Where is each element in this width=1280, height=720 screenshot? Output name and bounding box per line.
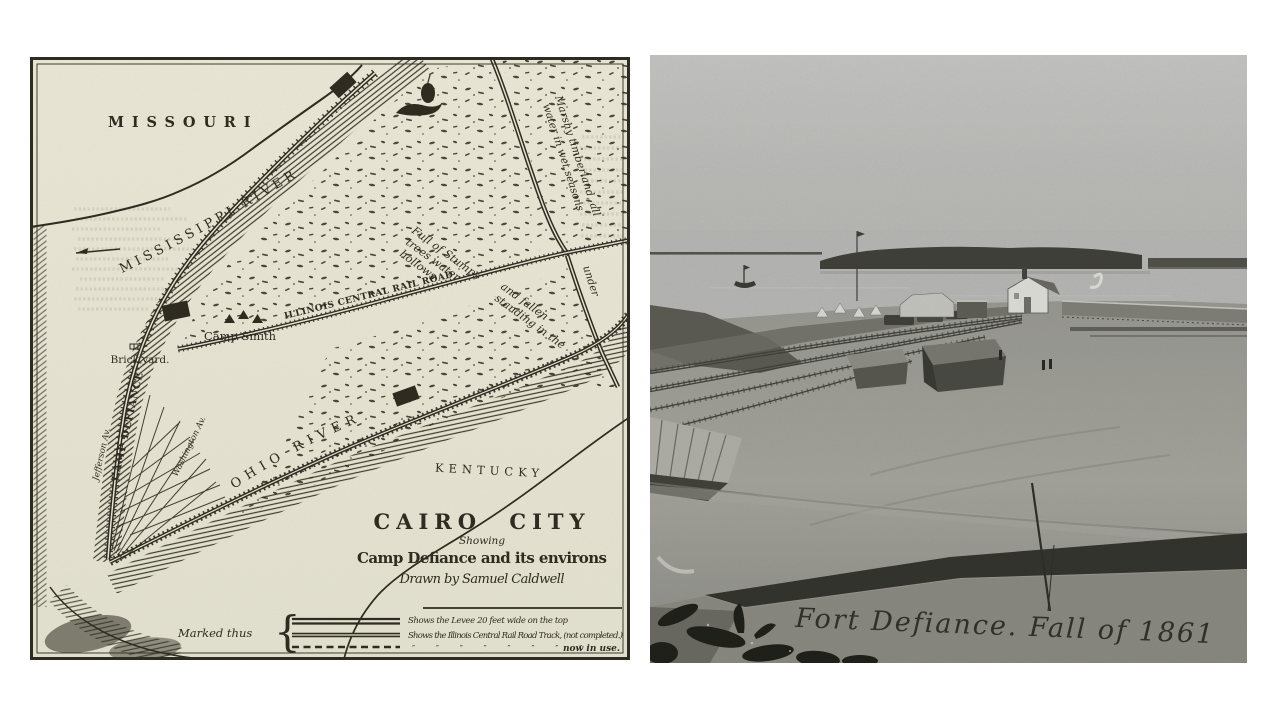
map-paper-grain: [30, 57, 630, 660]
photo-grain: [650, 55, 1247, 663]
photo-svg: Fort Defiance. Fall of 1861: [650, 55, 1247, 663]
photo-figure: Fort Defiance. Fall of 1861: [650, 55, 1247, 663]
map-figure: MISSOURI MISSISSIPPI RIVER OHIO RIVER KE…: [30, 57, 630, 660]
slide-canvas: { "page": { "background": "#ffffff", "de…: [0, 0, 1280, 720]
map-svg: MISSOURI MISSISSIPPI RIVER OHIO RIVER KE…: [30, 57, 630, 660]
